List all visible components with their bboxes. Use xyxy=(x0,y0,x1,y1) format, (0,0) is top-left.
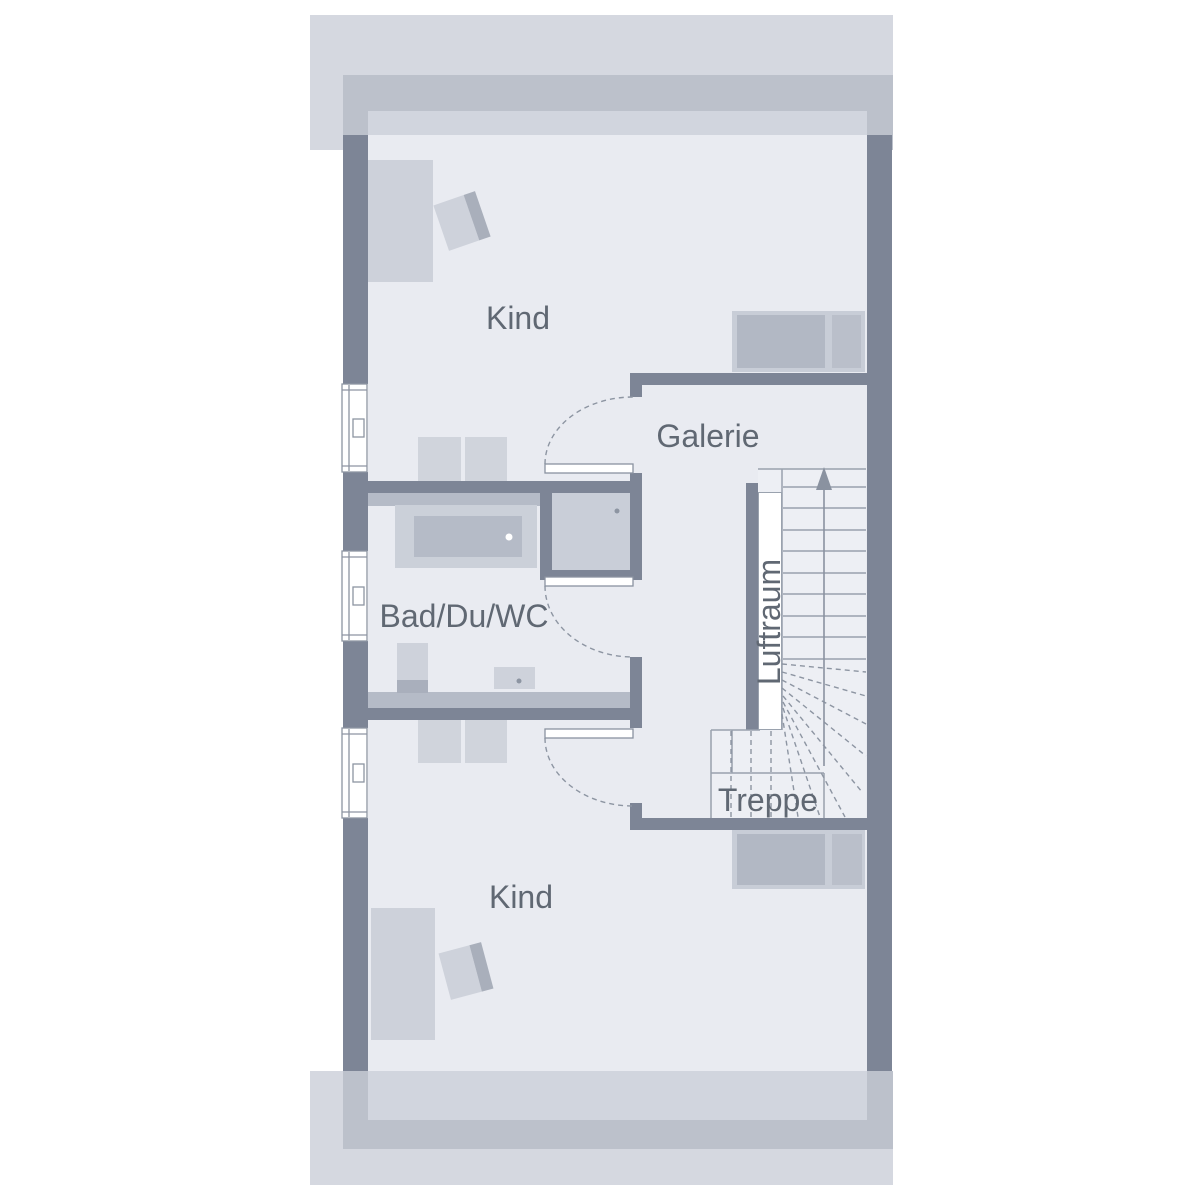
wardrobe-kind-top xyxy=(368,160,433,282)
bath-counter-south xyxy=(368,692,630,708)
wall-stub-galerie xyxy=(630,373,642,397)
wall-shower-west xyxy=(540,481,552,580)
washbasin xyxy=(494,667,535,689)
room-label-treppe: Treppe xyxy=(718,784,818,816)
dresser-kind-bottom xyxy=(418,720,507,763)
floor-plan: Kind Galerie Bad/Du/WC Luftraum Treppe K… xyxy=(0,0,1200,1200)
window-symbol-bad xyxy=(342,551,367,641)
wardrobe-kind-bottom xyxy=(371,908,435,1040)
dresser-kind-top xyxy=(418,437,507,481)
dresser-door xyxy=(465,437,508,481)
shower-floor xyxy=(552,493,630,570)
wall-right xyxy=(867,135,892,1071)
wall-treppe-south xyxy=(630,818,892,830)
wall-column-shower-east xyxy=(630,473,642,580)
exterior-wall-inner-band-bottom xyxy=(368,1071,867,1120)
wall-left-segment-4 xyxy=(343,818,368,1071)
wall-shower-south xyxy=(540,570,642,580)
dresser-door xyxy=(418,720,461,763)
wall-bad-south xyxy=(343,708,642,720)
window-symbol-kind-bottom xyxy=(342,728,367,818)
room-label-galerie: Galerie xyxy=(656,420,759,452)
room-label-kind-bottom: Kind xyxy=(489,881,553,913)
toilet-cistern xyxy=(397,680,428,693)
bed-mattress-kind-bottom xyxy=(737,834,825,885)
dresser-door xyxy=(418,437,461,481)
bed-pillow-kind-top xyxy=(832,315,861,368)
bed-pillow-kind-bottom xyxy=(832,834,862,885)
wall-bad-north xyxy=(343,481,642,493)
window-symbol-kind-top xyxy=(342,384,367,472)
room-label-luftraum: Luftraum xyxy=(753,559,785,685)
room-label-kind-top: Kind xyxy=(486,302,550,334)
wall-left-segment-1 xyxy=(343,135,368,384)
bed-mattress-kind-top xyxy=(737,315,825,368)
room-label-bad: Bad/Du/WC xyxy=(380,600,549,632)
wall-galerie-north xyxy=(630,373,892,385)
bathtub xyxy=(414,516,522,557)
dresser-door xyxy=(465,720,508,763)
toilet-bowl xyxy=(397,643,428,680)
